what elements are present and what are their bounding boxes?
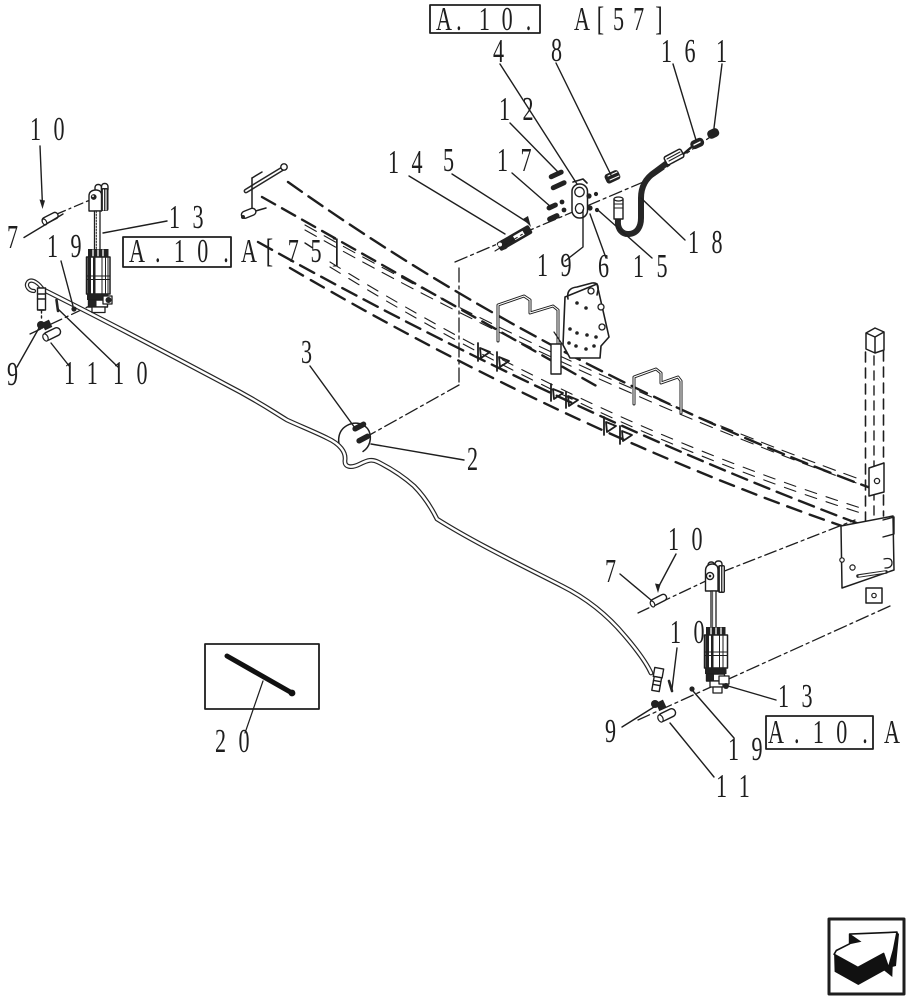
svg-text:A[75]: A[75] <box>241 232 339 270</box>
svg-text:13: 13 <box>778 677 825 715</box>
svg-text:5: 5 <box>443 141 467 179</box>
svg-text:20: 20 <box>215 722 262 760</box>
svg-text:9: 9 <box>605 712 629 750</box>
svg-text:3: 3 <box>301 333 325 371</box>
svg-text:15: 15 <box>633 247 680 285</box>
svg-text:9: 9 <box>7 355 31 393</box>
svg-text:16: 16 <box>661 32 708 70</box>
svg-text:10: 10 <box>113 354 160 392</box>
svg-text:7: 7 <box>605 552 629 590</box>
svg-text:7: 7 <box>7 218 31 256</box>
svg-text:19: 19 <box>47 227 94 265</box>
svg-text:17: 17 <box>497 141 544 179</box>
svg-text:12: 12 <box>499 90 546 128</box>
svg-text:10: 10 <box>670 613 717 651</box>
svg-text:2: 2 <box>467 440 491 478</box>
svg-text:13: 13 <box>169 198 216 236</box>
svg-text:8: 8 <box>551 31 575 69</box>
svg-text:A[57]: A[57] <box>574 0 663 38</box>
svg-text:10: 10 <box>668 520 715 558</box>
svg-text:18: 18 <box>688 223 735 261</box>
svg-text:A: A <box>884 713 900 751</box>
svg-text:6: 6 <box>598 247 622 285</box>
svg-text:19: 19 <box>537 246 584 284</box>
svg-text:11: 11 <box>64 354 110 392</box>
svg-text:14: 14 <box>388 143 435 181</box>
svg-text:10: 10 <box>30 110 77 148</box>
svg-text:1: 1 <box>716 32 740 70</box>
svg-text:11: 11 <box>716 767 762 805</box>
